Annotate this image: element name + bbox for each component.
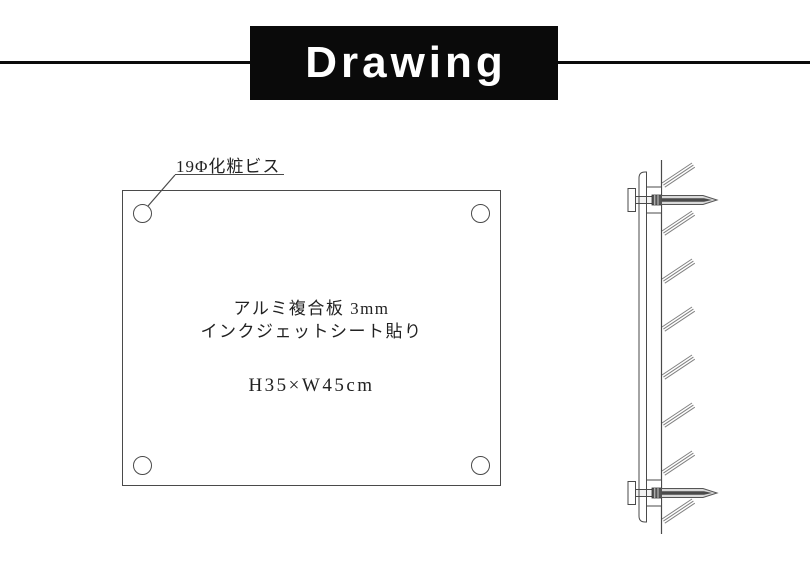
material-line-2: インクジェットシート貼り [123, 320, 500, 343]
wall-hatch-5 [662, 355, 695, 379]
wall-hatch-1 [662, 163, 695, 187]
side-view-drawing [600, 150, 730, 545]
wall-hatch-6 [662, 403, 695, 427]
panel-section-profile [639, 172, 647, 522]
material-spec-text: アルミ複合板 3mm インクジェットシート貼り [123, 297, 500, 343]
wall-hatch-3 [662, 259, 695, 283]
screw-hole-bottom-right-icon [471, 456, 490, 475]
material-line-1: アルミ複合板 3mm [123, 297, 500, 320]
screw-callout-underline [175, 174, 284, 175]
spec-drawing-page: Drawing アルミ複合板 3mm インクジェットシート貼り H35×W45c… [0, 0, 810, 587]
front-view-panel: アルミ複合板 3mm インクジェットシート貼り H35×W45cm [122, 190, 501, 486]
wall-hatch-2 [662, 211, 695, 235]
page-title: Drawing [301, 41, 507, 85]
screw-hole-bottom-left-icon [133, 456, 152, 475]
wall-hatch-8 [662, 499, 695, 523]
wall-hatch-7 [662, 451, 695, 475]
screw-hole-top-right-icon [471, 204, 490, 223]
drawing-title-banner: Drawing [250, 26, 558, 100]
screw-callout-leader-line [140, 172, 180, 210]
size-label: H35×W45cm [123, 375, 500, 397]
wall-hatch-4 [662, 307, 695, 331]
